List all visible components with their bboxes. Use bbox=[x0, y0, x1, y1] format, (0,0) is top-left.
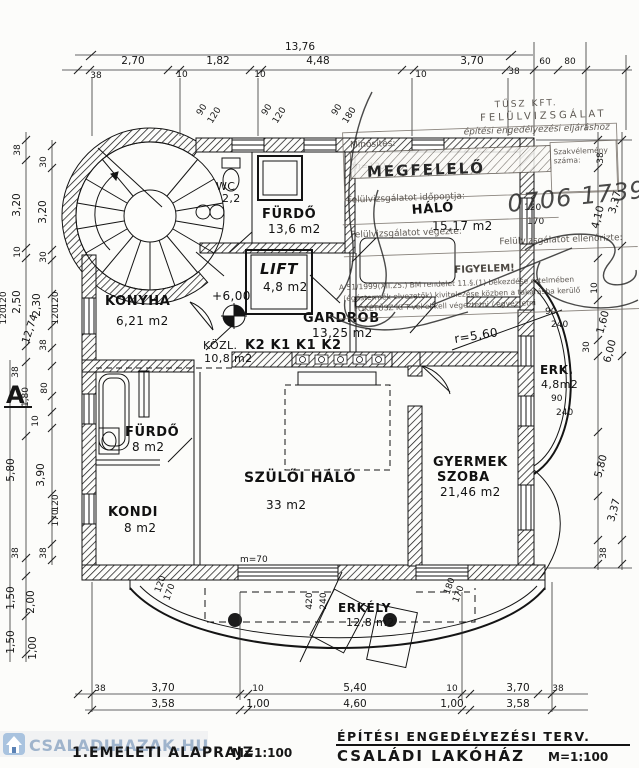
room-name-gyermek-1: GYERMEK bbox=[433, 455, 508, 470]
dim: 80 bbox=[40, 382, 50, 394]
gyermek-window bbox=[518, 485, 534, 530]
room-area-szuloi: 33 m2 bbox=[266, 498, 306, 512]
parapet-label: m=70 bbox=[240, 555, 268, 565]
stamp-szakvelemeny-1: Szakvélemény bbox=[553, 145, 608, 156]
room-area-konyha: 6,21 m2 bbox=[116, 314, 169, 328]
left-window-3 bbox=[82, 494, 96, 524]
dim: 10 bbox=[13, 246, 23, 258]
door-leaf bbox=[168, 438, 192, 462]
room-name-lift: LIFT bbox=[260, 260, 299, 278]
dim: 10 bbox=[31, 415, 41, 427]
glass-blocks bbox=[296, 355, 385, 364]
dim: 90 bbox=[260, 102, 275, 117]
room-name-erk: ERK. bbox=[540, 363, 574, 377]
dim: 6,00 bbox=[601, 338, 619, 364]
dim: 90 bbox=[551, 394, 563, 404]
radius-label: r=5,60 bbox=[453, 325, 499, 346]
room-area-gyermek: 21,46 m2 bbox=[440, 485, 501, 499]
top-window-1 bbox=[232, 138, 264, 152]
dim: 2,30 bbox=[31, 293, 43, 316]
halo-furniture bbox=[360, 238, 455, 283]
stair-arrow bbox=[111, 172, 118, 180]
room-area-wc: 2,2 bbox=[222, 192, 241, 205]
left-window-1 bbox=[82, 298, 96, 334]
dim: 60 bbox=[539, 57, 551, 67]
door-leaf bbox=[196, 252, 224, 276]
room-name-furdo-top: FÜRDŐ bbox=[262, 206, 316, 222]
dim: 38 bbox=[90, 71, 102, 81]
dim: 10 bbox=[415, 70, 427, 80]
dim: 3,70 bbox=[151, 682, 174, 694]
dim: 1,00 bbox=[27, 636, 39, 659]
dim: 38 bbox=[552, 684, 564, 694]
dim: 170 bbox=[51, 509, 61, 526]
dim: 420 bbox=[305, 592, 315, 609]
dim: 4,60 bbox=[343, 698, 366, 710]
stamp-ellenorizte: Felülvizsgálatot ellenőrizte: bbox=[499, 233, 622, 247]
dim: 120 bbox=[0, 307, 9, 324]
balcony-door-2 bbox=[416, 565, 468, 580]
dim: 5,40 bbox=[343, 682, 366, 694]
stamp-minosites: Minősítés: bbox=[350, 138, 396, 151]
dim: 10 bbox=[252, 684, 264, 694]
erk-door-1 bbox=[518, 336, 534, 366]
dim: 38 bbox=[11, 547, 21, 559]
dim: 3,70 bbox=[506, 682, 529, 694]
dim: 1,50 bbox=[5, 630, 17, 653]
dim: 3,70 bbox=[460, 55, 483, 67]
dim: 38 bbox=[39, 339, 49, 351]
room-name-gyermek-2: SZOBA bbox=[437, 470, 490, 485]
bed bbox=[285, 385, 390, 470]
room-name-furdo-left: FÜRDŐ bbox=[125, 424, 179, 440]
dim: 38 bbox=[39, 547, 49, 559]
room-name-konyha: KONYHA bbox=[105, 294, 170, 309]
room-name-kondi: KONDI bbox=[108, 505, 158, 520]
room-area-furdo-top: 13,6 m2 bbox=[268, 222, 321, 236]
plan-title: 1.EMELETI ALAPRAJZ bbox=[72, 745, 254, 761]
dim: 10 bbox=[590, 282, 600, 294]
dim: 2,50 bbox=[11, 290, 23, 313]
floorplan-sheet: 13,76 2,70 1,82 4,48 3,70 38 10 10 10 38… bbox=[0, 0, 639, 768]
dim: 90 bbox=[195, 102, 210, 117]
room-name-kozl: KÖZL. bbox=[203, 339, 237, 352]
stair-walkline bbox=[95, 172, 118, 250]
door-leaf bbox=[190, 302, 213, 330]
dim: 120 bbox=[51, 291, 61, 308]
balcony-door-1 bbox=[238, 565, 338, 580]
project-scale: M=1:100 bbox=[548, 750, 608, 764]
project-name: CSALÁDI LAKÓHÁZ bbox=[337, 746, 525, 765]
dim: 10 bbox=[254, 70, 266, 80]
k-row-label: K2 K1 K1 K2 bbox=[245, 338, 342, 353]
dim: 2,70 bbox=[121, 55, 144, 67]
dim: 80 bbox=[564, 57, 576, 67]
dim: 2,00 bbox=[25, 590, 37, 613]
shower bbox=[258, 156, 302, 200]
dim: 240 bbox=[556, 408, 573, 418]
bay-curve bbox=[534, 470, 560, 578]
stamp-head1: TŰSZ KFT. bbox=[493, 97, 557, 110]
dim-top-total: 13,76 bbox=[285, 41, 315, 53]
room-name-szuloi: SZÜLŐI HÁLÓ bbox=[244, 468, 356, 486]
dim: 38 bbox=[11, 366, 21, 378]
dim: 38 bbox=[94, 684, 106, 694]
dim: 10 bbox=[446, 684, 458, 694]
dim: 1,50 bbox=[5, 586, 17, 609]
room-name-erkely: ERKÉLY bbox=[338, 600, 391, 615]
room-area-furdo-left: 8 m2 bbox=[132, 440, 164, 454]
plan-scale: M=1:100 bbox=[232, 746, 292, 760]
dim: 3,58 bbox=[506, 698, 529, 710]
erkely-balcony bbox=[130, 572, 545, 668]
dim: 1,00 bbox=[246, 698, 269, 710]
stair-leader-line bbox=[98, 148, 162, 207]
dim: 120 bbox=[51, 307, 61, 324]
dim: 3,58 bbox=[151, 698, 174, 710]
dim: 3,37 bbox=[605, 497, 623, 523]
section-a-mark: A bbox=[6, 381, 25, 409]
door-leaf bbox=[422, 366, 450, 392]
door-leaf bbox=[352, 238, 376, 262]
dim: 120 bbox=[51, 494, 61, 511]
top-window-2 bbox=[304, 138, 336, 152]
radiator bbox=[139, 371, 149, 417]
dim: 1,00 bbox=[440, 698, 463, 710]
title-block: CSALADIHAZAK.HU 1.EMELETI ALAPRAJZ M=1:1… bbox=[0, 729, 630, 765]
dim: 3,90 bbox=[35, 463, 47, 486]
dim: 90 bbox=[330, 102, 345, 117]
dim: 30 bbox=[582, 341, 592, 353]
dim: 38 bbox=[508, 67, 520, 77]
stamp-figyelem: FIGYELEM! bbox=[454, 263, 515, 276]
spiral-stair bbox=[76, 142, 224, 290]
door-leaf bbox=[310, 275, 340, 303]
dim: 3,20 bbox=[37, 200, 49, 223]
level-mark-symbol bbox=[221, 303, 247, 329]
left-window-2 bbox=[82, 394, 96, 424]
dim: 10 bbox=[176, 70, 188, 80]
room-area-kozl: 10,8 m2 bbox=[204, 352, 253, 365]
bed-headboard bbox=[298, 372, 376, 385]
room-area-kondi: 8 m2 bbox=[124, 521, 156, 535]
level-mark-label: +6,00 bbox=[212, 289, 251, 303]
floorplan-drawing: 13,76 2,70 1,82 4,48 3,70 38 10 10 10 38… bbox=[0, 0, 639, 768]
dim: 5,80 bbox=[5, 458, 17, 481]
dim: 1,60 bbox=[594, 309, 612, 335]
room-area-erkely: 12,8 m2 bbox=[346, 616, 395, 629]
dim: 38 bbox=[13, 144, 23, 156]
dim: 120 bbox=[0, 291, 9, 308]
erk-door-2 bbox=[518, 396, 534, 426]
dim: 240 bbox=[551, 320, 568, 330]
project-kind: ÉPÍTÉSI ENGEDÉLYEZÉSI TERV. bbox=[337, 729, 590, 744]
dim: 3,20 bbox=[11, 193, 23, 216]
dim: 4,48 bbox=[306, 55, 329, 67]
room-area-lift: 4,8 m2 bbox=[263, 280, 308, 294]
dim: 30 bbox=[39, 251, 49, 263]
room-area-erk: 4,8m2 bbox=[541, 378, 578, 391]
dim: 38 bbox=[599, 547, 609, 559]
dim: 30 bbox=[39, 156, 49, 168]
dim: 1,82 bbox=[206, 55, 229, 67]
dim: 240 bbox=[319, 592, 329, 609]
stamp-szakvelemeny-2: száma: bbox=[554, 155, 581, 165]
dim: 5,80 bbox=[592, 453, 610, 479]
